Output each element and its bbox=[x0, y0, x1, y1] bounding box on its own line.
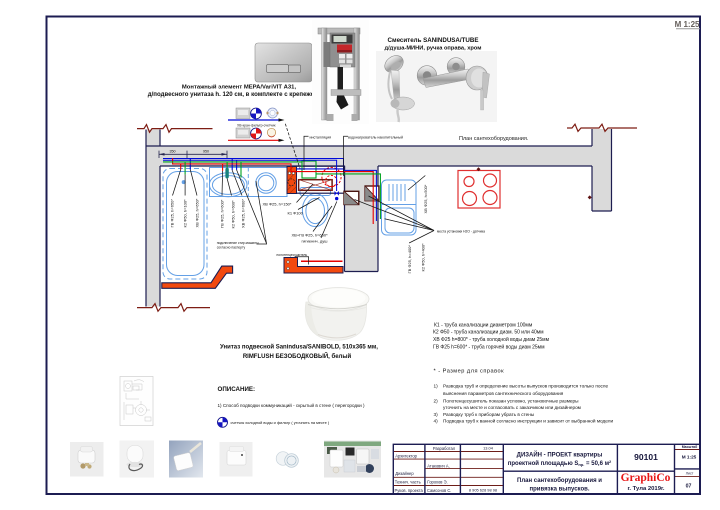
svg-text:выяснения параметров сантехнич: выяснения параметров сантехнического обо… bbox=[443, 391, 564, 396]
svg-text:ХВ-кран-фильтр-счетчик: ХВ-кран-фильтр-счетчик bbox=[237, 124, 276, 128]
svg-text:ХВ Ф25, h=600*: ХВ Ф25, h=600* bbox=[241, 199, 246, 228]
svg-text:д/душа-МИНИ, ручка оправа, хро: д/душа-МИНИ, ручка оправа, хром bbox=[384, 46, 481, 52]
svg-text:К1 Ф100: К1 Ф100 bbox=[288, 210, 304, 215]
svg-text:Полотенцесушитель показан усло: Полотенцесушитель показан условно, устан… bbox=[443, 398, 579, 403]
svg-text:места установки Н2О - датчика: места установки Н2О - датчика bbox=[437, 230, 485, 234]
svg-text:Монтажный элемент MEPA/VariVIT: Монтажный элемент MEPA/VariVIT А31, bbox=[182, 84, 297, 91]
svg-text:3): 3) bbox=[434, 412, 439, 417]
svg-text:ГВ Ф25 h=600* - труба горячей: ГВ Ф25 h=600* - труба горячей воды диам … bbox=[433, 343, 545, 350]
svg-text:ОПИСАНИЕ:: ОПИСАНИЕ: bbox=[218, 386, 256, 393]
svg-text:Разводку труб к приборам убрат: Разводку труб к приборам убрать в стены bbox=[443, 412, 535, 417]
svg-text:GraphiCo: GraphiCo bbox=[621, 472, 671, 484]
svg-text:4): 4) bbox=[434, 419, 439, 424]
svg-text:90101: 90101 bbox=[634, 452, 658, 462]
svg-text:М 1:25: М 1:25 bbox=[682, 455, 697, 460]
svg-text:гигиенич. душ: гигиенич. душ bbox=[302, 239, 328, 244]
svg-text:Архитектор: Архитектор bbox=[395, 454, 417, 459]
svg-text:К1 - труба канализации диаметр: К1 - труба канализации диаметром 100мм bbox=[434, 322, 533, 328]
svg-text:ДИЗАЙН - ПРОЕКТ квартиры: ДИЗАЙН - ПРОЕКТ квартиры bbox=[517, 451, 603, 459]
svg-text:Смеситель SANINDUSA/TUBE: Смеситель SANINDUSA/TUBE bbox=[388, 37, 479, 44]
svg-text:ГВ Ф25, h=600*: ГВ Ф25, h=600* bbox=[219, 199, 224, 228]
svg-text:ХВ Ф25, h=500*: ХВ Ф25, h=500* bbox=[423, 184, 428, 213]
svg-text:План сантехоборудования.: План сантехоборудования. bbox=[459, 136, 529, 142]
svg-text:Дизайнер: Дизайнер bbox=[395, 471, 414, 476]
svg-text:проектной площадью Sпр. = 50,6: проектной площадью Sпр. = 50,6 м2 bbox=[508, 459, 612, 467]
svg-text:13.04: 13.04 bbox=[483, 446, 494, 451]
svg-text:К2 Ф50 - труба канализации диа: К2 Ф50 - труба канализации диам. 50 или … bbox=[433, 330, 544, 336]
svg-text:План сантехоборудования и: План сантехоборудования и bbox=[517, 477, 602, 484]
svg-text:согласно паспорту: согласно паспорту bbox=[217, 245, 246, 249]
svg-text:К2 Ф50, h=100*: К2 Ф50, h=100* bbox=[182, 199, 187, 228]
svg-text:2): 2) bbox=[434, 398, 439, 403]
svg-text:* - Размер для справок: * - Размер для справок bbox=[434, 369, 505, 375]
svg-text:уточнить на месте и согласоват: уточнить на месте и согласовать с заказч… bbox=[443, 404, 581, 410]
svg-text:подключение стир.машины: подключение стир.машины bbox=[217, 241, 259, 245]
svg-text:ХВ Ф25, h=650*: ХВ Ф25, h=650* bbox=[195, 198, 200, 227]
svg-text:Горохов Э.: Горохов Э. bbox=[427, 480, 447, 485]
svg-text:Атакович А.: Атакович А. bbox=[427, 463, 449, 468]
svg-text:г. Тула 2019г.: г. Тула 2019г. bbox=[628, 486, 665, 492]
svg-text:Самсонов С.: Самсонов С. bbox=[427, 488, 451, 493]
svg-text:Технич. часть: Технич. часть bbox=[395, 480, 421, 485]
svg-text:ХВ+ГВ Ф25, h=650*: ХВ+ГВ Ф25, h=650* bbox=[292, 233, 329, 238]
svg-text:М 1:25: М 1:25 bbox=[675, 20, 700, 29]
svg-text:водонагреватель накопительный: водонагреватель накопительный bbox=[348, 135, 403, 139]
svg-text:ГВ Ф25, h=400*: ГВ Ф25, h=400* bbox=[407, 245, 412, 274]
svg-text:счетчик холодной воды и фильтр: счетчик холодной воды и фильтр ( уточнит… bbox=[231, 420, 330, 425]
svg-text:Унитаз подвесной Sanindusa/SAN: Унитаз подвесной Sanindusa/SANIBOLD, 510… bbox=[220, 344, 378, 351]
svg-text:Подводка труб к ванной согласн: Подводка труб к ванной согласно инструкц… bbox=[443, 418, 613, 424]
svg-text:1) Способ подводки коммуникаци: 1) Способ подводки коммуникаций - скрыты… bbox=[218, 402, 365, 408]
svg-text:Масштаб: Масштаб bbox=[682, 445, 698, 449]
svg-text:350: 350 bbox=[170, 150, 176, 154]
svg-text:инсталляция: инсталляция bbox=[310, 135, 332, 139]
svg-text:К2 Ф50, h=600*: К2 Ф50, h=600* bbox=[230, 200, 235, 229]
svg-text:8 905 628 98 98: 8 905 628 98 98 bbox=[469, 488, 497, 493]
svg-text:Разводка труб и определение вы: Разводка труб и определение высоты выпус… bbox=[443, 383, 609, 388]
svg-text:ГВ Ф25, h=650*: ГВ Ф25, h=650* bbox=[169, 199, 174, 228]
svg-text:Лист: Лист bbox=[686, 472, 694, 476]
svg-text:д/подвесного унитаза h. 120 см: д/подвесного унитаза h. 120 см, в компле… bbox=[148, 91, 331, 98]
svg-text:950: 950 bbox=[203, 150, 209, 154]
svg-text:ХВ Ф25, h=150*: ХВ Ф25, h=150* bbox=[263, 201, 292, 206]
svg-text:Руков. проекта: Руков. проекта bbox=[395, 488, 424, 493]
svg-text:RIMFLUSH БЕЗОБОДКОВЫЙ, белый: RIMFLUSH БЕЗОБОДКОВЫЙ, белый bbox=[243, 352, 352, 360]
svg-text:Разработал: Разработал bbox=[433, 446, 456, 451]
svg-text:К2 Ф50, h=400*: К2 Ф50, h=400* bbox=[421, 243, 426, 272]
svg-text:полотенцесушитель: полотенцесушитель bbox=[277, 253, 308, 257]
svg-text:ХВ Ф25 h=800* - труба холодной: ХВ Ф25 h=800* - труба холодной воды диам… bbox=[433, 336, 550, 343]
svg-text:1): 1) bbox=[434, 383, 439, 388]
svg-text:привязка выпусков.: привязка выпусков. bbox=[530, 487, 590, 493]
svg-text:07: 07 bbox=[686, 484, 692, 490]
